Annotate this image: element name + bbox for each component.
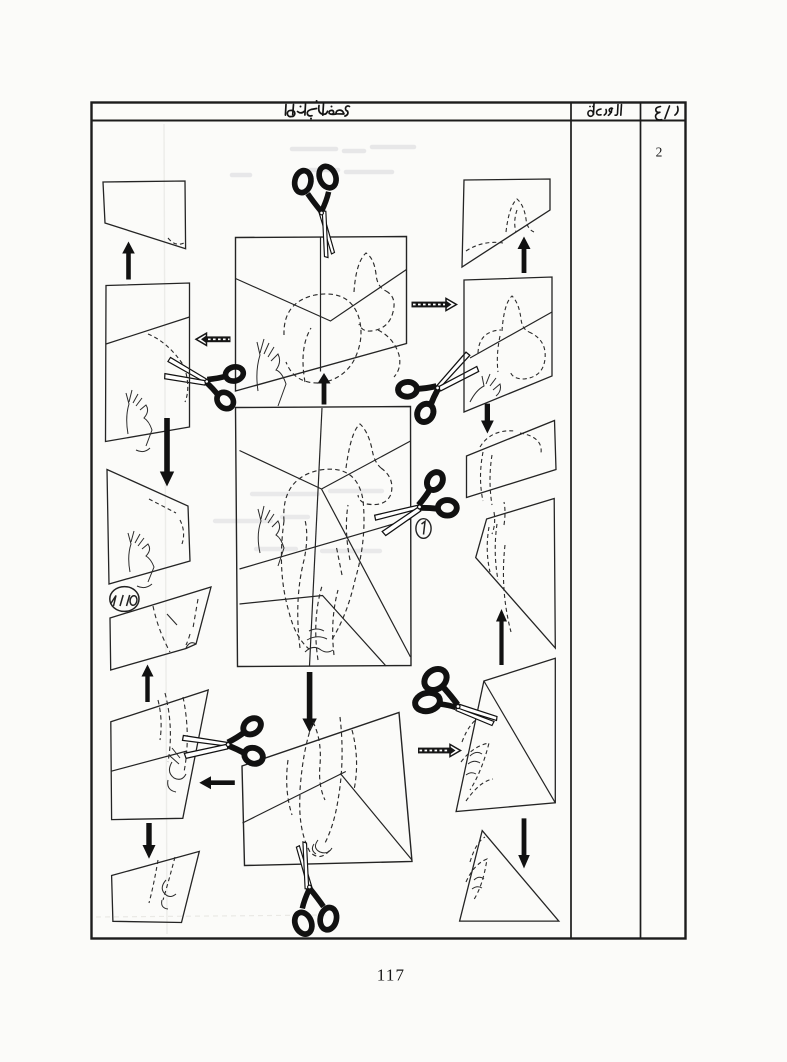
svg-text:117: 117 [377, 966, 405, 985]
svg-text:2: 2 [656, 145, 663, 160]
